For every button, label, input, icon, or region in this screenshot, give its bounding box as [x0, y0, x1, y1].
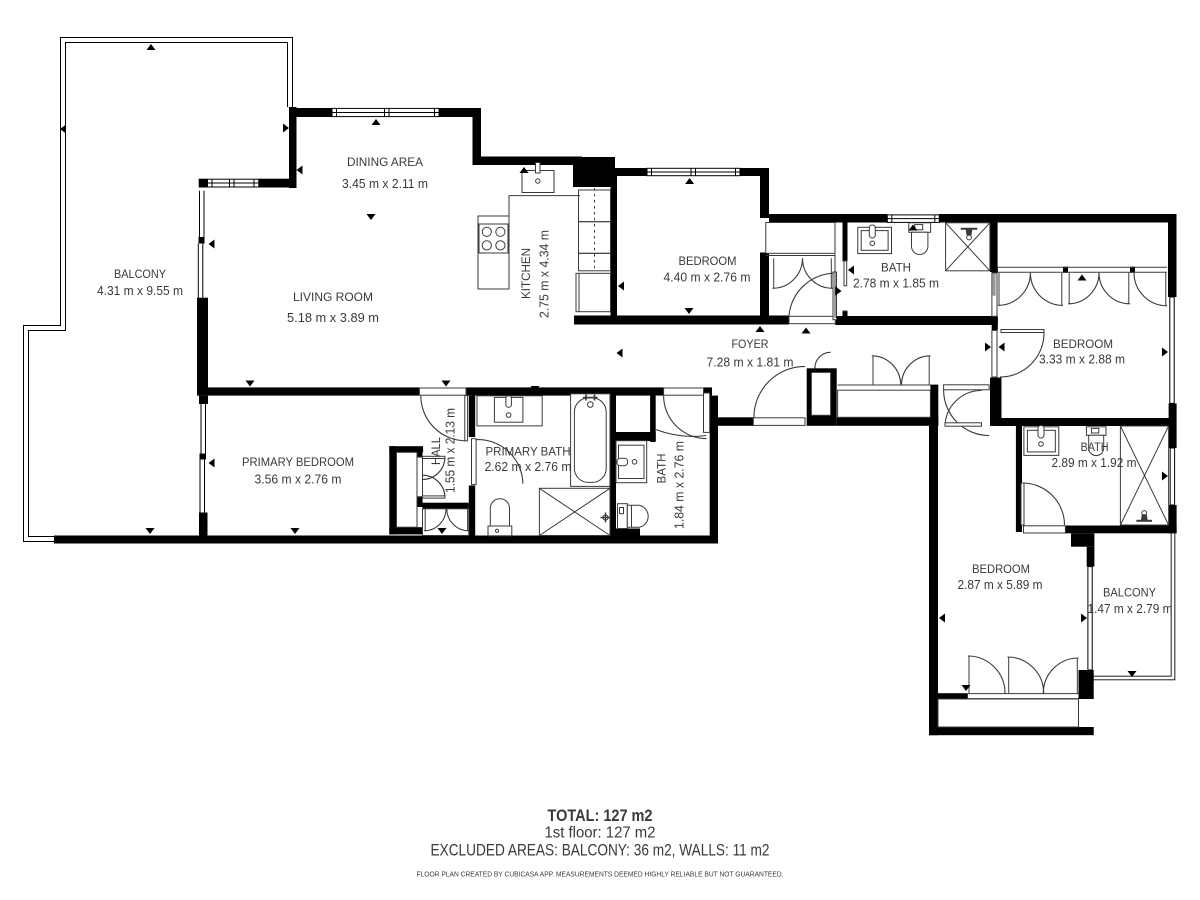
svg-text:1.55 m x 2.13 m: 1.55 m x 2.13 m: [443, 408, 458, 493]
svg-text:DINING AREA: DINING AREA: [347, 155, 424, 169]
svg-text:4.40 m x 2.76 m: 4.40 m x 2.76 m: [664, 270, 751, 285]
svg-text:PRIMARY BATH: PRIMARY BATH: [486, 445, 571, 459]
svg-text:5.18 m x 3.89 m: 5.18 m x 3.89 m: [287, 310, 379, 325]
svg-text:1.84 m x 2.76 m: 1.84 m x 2.76 m: [672, 441, 687, 529]
svg-text:2.75 m x 4.34 m: 2.75 m x 4.34 m: [537, 230, 552, 318]
svg-text:2.87 m x 5.89 m: 2.87 m x 5.89 m: [958, 577, 1043, 592]
svg-text:2.89 m x 1.92 m: 2.89 m x 1.92 m: [1052, 455, 1137, 470]
svg-text:2.78 m x 1.85 m: 2.78 m x 1.85 m: [853, 276, 939, 291]
svg-text:KITCHEN: KITCHEN: [519, 248, 533, 299]
svg-text:7.28 m x 1.81 m: 7.28 m x 1.81 m: [707, 355, 794, 370]
svg-text:FLOOR PLAN CREATED BY CUBICASA: FLOOR PLAN CREATED BY CUBICASA APP. MEAS…: [417, 871, 784, 878]
svg-text:PRIMARY BEDROOM: PRIMARY BEDROOM: [242, 455, 354, 469]
svg-text:TOTAL: 127 m2: TOTAL: 127 m2: [548, 807, 653, 825]
svg-text:BALCONY: BALCONY: [1103, 586, 1156, 600]
svg-text:HALL: HALL: [429, 437, 443, 465]
svg-text:BATH: BATH: [654, 454, 668, 484]
svg-text:3.33 m x 2.88 m: 3.33 m x 2.88 m: [1039, 352, 1125, 367]
svg-text:4.31 m x 9.55 m: 4.31 m x 9.55 m: [97, 283, 183, 298]
svg-text:EXCLUDED AREAS: BALCONY: 36 m2: EXCLUDED AREAS: BALCONY: 36 m2, WALLS: 1…: [431, 842, 770, 860]
svg-text:1.47 m x 2.79 m: 1.47 m x 2.79 m: [1088, 601, 1173, 616]
svg-text:BALCONY: BALCONY: [114, 267, 166, 281]
svg-text:3.45 m x 2.11 m: 3.45 m x 2.11 m: [342, 176, 428, 191]
svg-text:1st floor: 127 m2: 1st floor: 127 m2: [545, 825, 656, 842]
svg-text:FOYER: FOYER: [732, 337, 769, 351]
svg-text:BATH: BATH: [881, 261, 911, 275]
svg-text:2.62 m x 2.76 m: 2.62 m x 2.76 m: [485, 459, 572, 474]
svg-text:BEDROOM: BEDROOM: [1053, 337, 1113, 351]
svg-text:3.56 m x 2.76 m: 3.56 m x 2.76 m: [255, 472, 342, 487]
svg-text:BATH: BATH: [1081, 440, 1109, 454]
svg-text:BEDROOM: BEDROOM: [972, 562, 1030, 576]
svg-text:BEDROOM: BEDROOM: [679, 254, 737, 268]
svg-text:LIVING ROOM: LIVING ROOM: [293, 290, 373, 304]
